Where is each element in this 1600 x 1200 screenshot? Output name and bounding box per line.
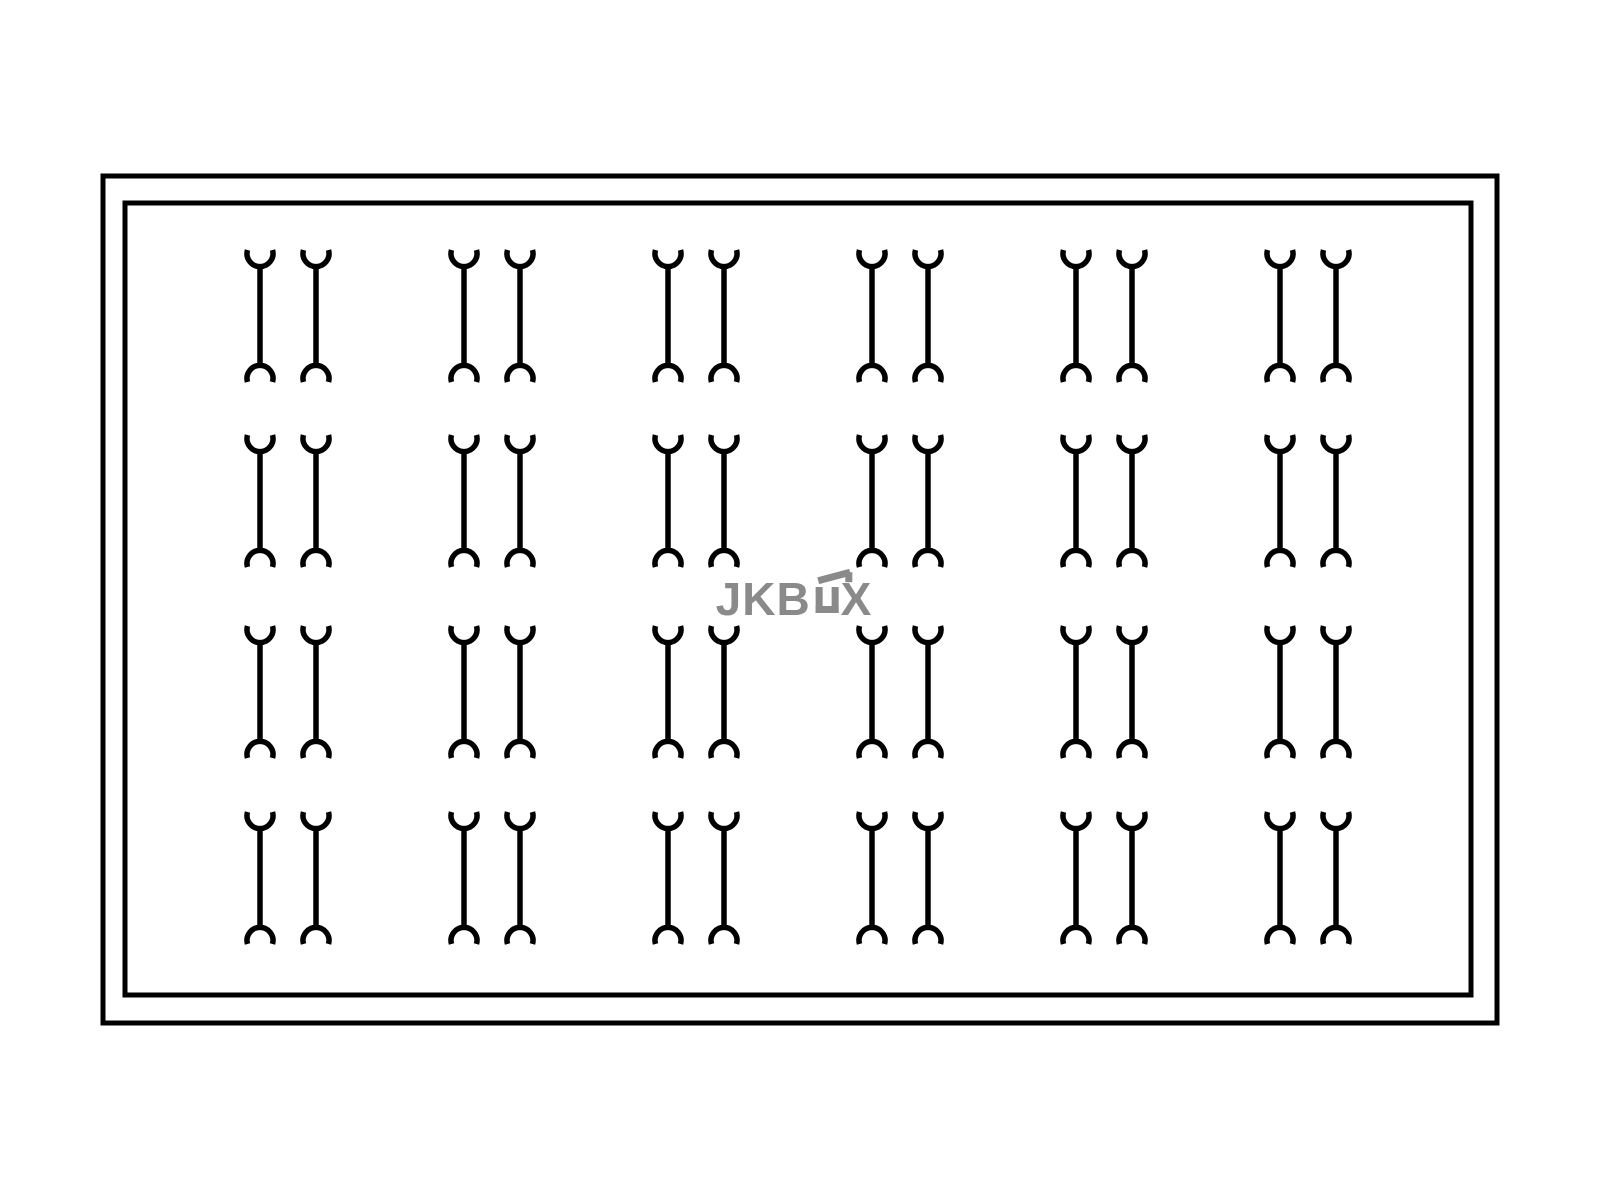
clip-symbol: [915, 435, 941, 567]
clip-symbol: [247, 435, 273, 567]
clip-symbol: [859, 812, 885, 944]
clip-symbol: [507, 812, 533, 944]
clip-symbol: [1063, 626, 1089, 758]
clip-symbol: [915, 250, 941, 382]
clip-symbol: [655, 250, 681, 382]
clip-symbol: [507, 626, 533, 758]
clip-symbol: [1267, 250, 1293, 382]
watermark-text-x: X: [841, 576, 873, 622]
clip-symbol: [1323, 626, 1349, 758]
brand-watermark: JKB X: [716, 576, 873, 622]
clip-symbol: [1119, 435, 1145, 567]
clip-symbol: [247, 250, 273, 382]
clip-symbol: [1323, 250, 1349, 382]
clip-symbol: [915, 812, 941, 944]
clip-symbol: [859, 250, 885, 382]
clip-symbol: [1119, 626, 1145, 758]
open-box-icon: [816, 587, 839, 613]
watermark-text-jkb: JKB: [716, 576, 811, 622]
clip-symbol: [1267, 812, 1293, 944]
clip-symbol: [303, 812, 329, 944]
clip-symbol: [711, 812, 737, 944]
clip-symbol: [451, 812, 477, 944]
drawing-page: JKB X: [0, 0, 1600, 1200]
clip-symbol: [451, 250, 477, 382]
clip-symbol: [915, 626, 941, 758]
clip-symbol: [1267, 626, 1293, 758]
clip-symbol: [1063, 435, 1089, 567]
clip-symbol: [451, 435, 477, 567]
clip-symbol: [655, 435, 681, 567]
clip-symbol: [1119, 250, 1145, 382]
clip-symbol: [451, 626, 477, 758]
clip-symbol: [711, 250, 737, 382]
clip-symbol: [507, 250, 533, 382]
clip-symbol: [711, 435, 737, 567]
clip-symbol: [247, 626, 273, 758]
clip-symbol: [507, 435, 533, 567]
clip-symbol: [859, 626, 885, 758]
clip-symbol: [711, 626, 737, 758]
clip-symbol: [1063, 812, 1089, 944]
clip-symbol: [655, 626, 681, 758]
clip-symbol: [303, 626, 329, 758]
clip-symbol: [1119, 812, 1145, 944]
clip-symbol: [1323, 435, 1349, 567]
clip-symbol: [1063, 250, 1089, 382]
clip-symbol: [655, 812, 681, 944]
clip-symbol: [1267, 435, 1293, 567]
clip-symbol: [247, 812, 273, 944]
clip-symbol: [1323, 812, 1349, 944]
clip-symbol: [859, 435, 885, 567]
clip-symbol: [303, 250, 329, 382]
clip-symbol: [303, 435, 329, 567]
